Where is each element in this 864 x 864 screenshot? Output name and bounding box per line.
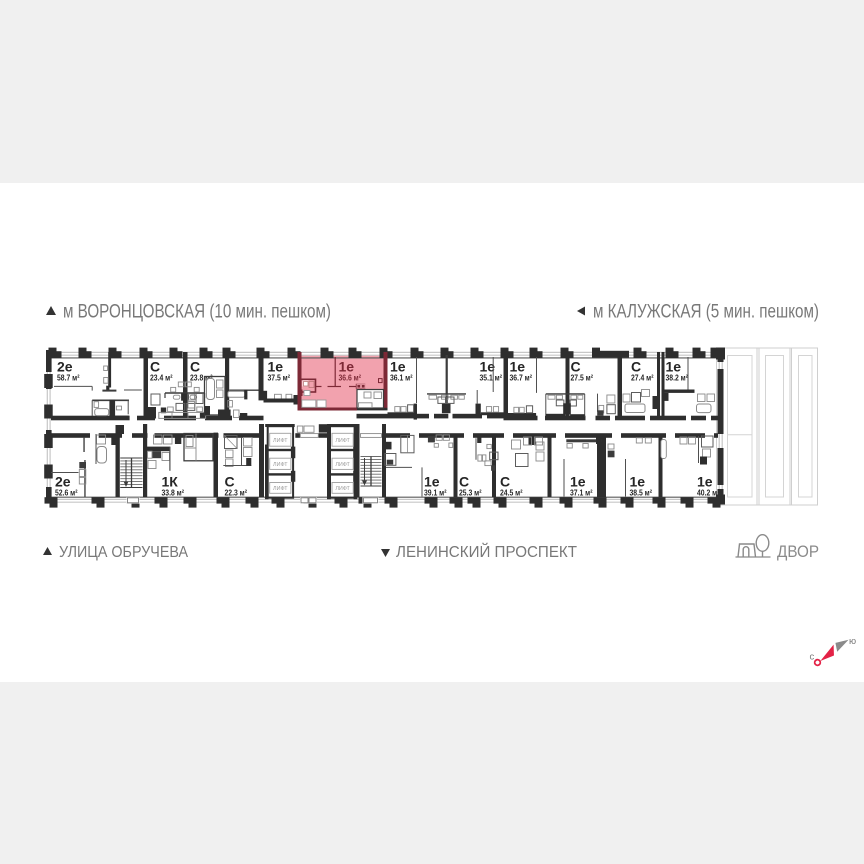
svg-text:С: С — [225, 474, 235, 490]
svg-text:ДВОР: ДВОР — [777, 543, 819, 561]
svg-text:1е: 1е — [339, 358, 355, 374]
svg-text:ЛИФТ: ЛИФТ — [335, 438, 350, 444]
svg-text:С: С — [571, 358, 581, 374]
svg-text:36.7 м²: 36.7 м² — [510, 373, 533, 382]
svg-text:С: С — [190, 358, 200, 374]
svg-text:36.1 м²: 36.1 м² — [390, 373, 413, 382]
svg-text:37.1 м²: 37.1 м² — [570, 488, 593, 497]
svg-text:ЛЕНИНСКИЙ ПРОСПЕКТ: ЛЕНИНСКИЙ ПРОСПЕКТ — [396, 543, 578, 561]
svg-text:1е: 1е — [510, 358, 526, 374]
svg-text:52.6 м²: 52.6 м² — [55, 488, 78, 497]
svg-text:С: С — [459, 474, 469, 490]
svg-text:м КАЛУЖСКАЯ (5 мин. пешком): м КАЛУЖСКАЯ (5 мин. пешком) — [593, 302, 819, 323]
svg-text:2е: 2е — [57, 358, 73, 374]
svg-text:37.5 м²: 37.5 м² — [268, 373, 291, 382]
svg-text:ЛИФТ: ЛИФТ — [335, 462, 350, 468]
svg-text:ЛИФТ: ЛИФТ — [273, 438, 288, 444]
svg-text:39.1 м²: 39.1 м² — [424, 488, 447, 497]
svg-text:2е: 2е — [55, 474, 71, 490]
svg-text:С: С — [500, 474, 510, 490]
svg-text:27.5 м²: 27.5 м² — [571, 373, 594, 382]
svg-text:С: С — [150, 358, 160, 374]
svg-text:ЛИФТ: ЛИФТ — [273, 462, 288, 468]
svg-text:1е: 1е — [268, 358, 284, 374]
svg-text:33.8 м²: 33.8 м² — [162, 488, 185, 497]
svg-text:1К: 1К — [162, 474, 179, 490]
svg-text:36.6 м²: 36.6 м² — [339, 373, 362, 382]
svg-text:1е: 1е — [390, 358, 406, 374]
svg-text:38.5 м²: 38.5 м² — [630, 488, 653, 497]
svg-text:38.2 м²: 38.2 м² — [666, 373, 689, 382]
svg-text:м ВОРОНЦОВСКАЯ (10 мин. пешко: м ВОРОНЦОВСКАЯ (10 мин. пешком) — [63, 302, 331, 323]
svg-text:1е: 1е — [630, 474, 646, 490]
svg-text:58.7 м²: 58.7 м² — [57, 373, 80, 382]
svg-text:27.4 м²: 27.4 м² — [631, 373, 654, 382]
svg-text:1е: 1е — [570, 474, 586, 490]
svg-text:С: С — [631, 358, 641, 374]
svg-text:с: с — [810, 652, 815, 663]
svg-text:1е: 1е — [424, 474, 440, 490]
svg-text:24.5 м²: 24.5 м² — [500, 488, 523, 497]
svg-text:ЛИФТ: ЛИФТ — [273, 486, 288, 492]
svg-text:35.1 м²: 35.1 м² — [480, 373, 503, 382]
svg-text:1е: 1е — [666, 358, 682, 374]
svg-text:ЛИФТ: ЛИФТ — [335, 486, 350, 492]
svg-text:1е: 1е — [697, 474, 713, 490]
svg-text:ю: ю — [849, 636, 856, 647]
svg-text:22.3 м²: 22.3 м² — [225, 488, 248, 497]
svg-text:40.2 м²: 40.2 м² — [697, 488, 720, 497]
svg-text:23.4 м²: 23.4 м² — [150, 373, 173, 382]
svg-text:25.3 м²: 25.3 м² — [459, 488, 482, 497]
svg-text:УЛИЦА ОБРУЧЕВА: УЛИЦА ОБРУЧЕВА — [59, 544, 189, 561]
